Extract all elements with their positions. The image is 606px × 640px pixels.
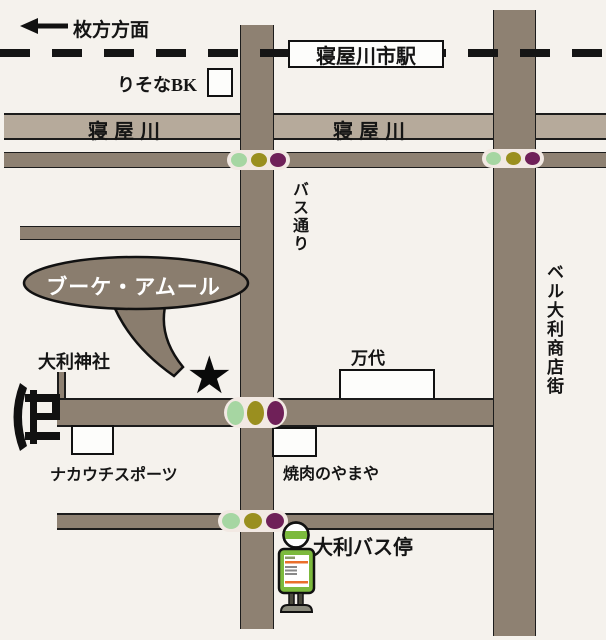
signal-yellow-dot	[506, 152, 521, 165]
traffic-light-icon	[227, 150, 290, 170]
sports-store-box	[71, 425, 114, 455]
star-icon: ★	[186, 350, 233, 402]
signal-green-dot	[222, 513, 240, 529]
signal-purple-dot	[270, 153, 286, 167]
direction-label: 枚方方面	[73, 15, 149, 42]
signal-yellow-dot	[247, 401, 264, 425]
road-bell-shopping-street-vertical	[493, 10, 536, 636]
signal-green-dot	[486, 152, 501, 165]
station-box: 寝屋川市駅	[288, 40, 444, 68]
signal-purple-dot	[525, 152, 540, 165]
supermarket-label: 万代	[351, 344, 385, 369]
station-label: 寝屋川市駅	[316, 40, 416, 69]
hand-drawn-access-map: 枚方方面 寝屋川市駅 りそなBK 寝屋川 寝屋川 バス通り ベル大利商店街 ブー…	[0, 0, 606, 640]
restaurant-box	[272, 427, 317, 457]
bank-building-box	[207, 68, 233, 97]
bus-stop-sign-icon	[276, 520, 317, 615]
bank-label: りそなBK	[117, 71, 197, 97]
mandai-building-box	[339, 369, 435, 400]
bus-street-label: バス通り	[286, 181, 310, 253]
shrine-label: 大利神社	[38, 348, 110, 374]
traffic-light-icon	[482, 149, 544, 168]
river-label-right: 寝屋川	[333, 115, 411, 144]
road-stub-left	[20, 226, 242, 240]
shopping-street-label: ベル大利商店街	[541, 263, 566, 396]
sports-store-label: ナカウチスポーツ	[50, 461, 178, 485]
signal-purple-dot	[267, 401, 284, 425]
signal-green-dot	[231, 153, 247, 167]
left-arrow-icon	[20, 16, 70, 36]
restaurant-label: 焼肉のやまや	[283, 460, 379, 484]
traffic-light-icon	[224, 397, 287, 428]
shop-name-label: ブーケ・アムール	[26, 271, 241, 301]
torii-gate-icon	[6, 383, 60, 451]
river-label-left: 寝屋川	[88, 115, 166, 144]
signal-yellow-dot	[251, 153, 267, 167]
signal-yellow-dot	[244, 513, 262, 529]
bus-stop-label: 大利バス停	[313, 531, 413, 560]
